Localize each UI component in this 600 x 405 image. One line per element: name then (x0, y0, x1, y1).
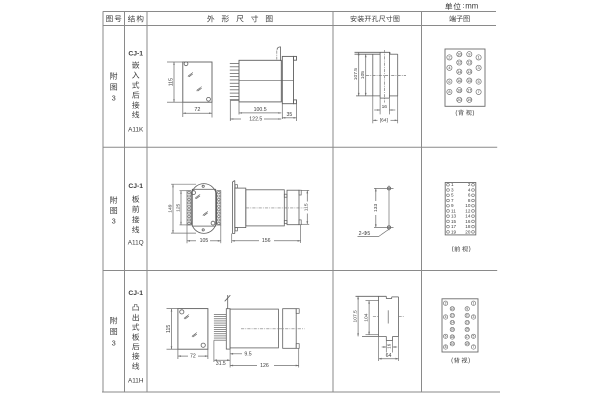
svg-text:11: 11 (467, 60, 471, 65)
svg-text:20: 20 (465, 229, 471, 234)
svg-text:6: 6 (445, 334, 447, 338)
svg-text:14: 14 (450, 321, 454, 325)
svg-text::: : (462, 1, 464, 10)
svg-text:mm: mm (465, 2, 478, 11)
svg-text:64: 64 (386, 353, 392, 359)
svg-text:15: 15 (467, 78, 471, 83)
svg-text:16: 16 (450, 328, 454, 332)
svg-text:133: 133 (373, 204, 379, 212)
svg-text:12: 12 (450, 314, 454, 318)
svg-text:7: 7 (478, 89, 480, 94)
svg-text:18: 18 (450, 335, 454, 339)
svg-text:15: 15 (465, 328, 469, 332)
svg-text:A11H: A11H (128, 378, 144, 385)
svg-text:9: 9 (466, 307, 468, 311)
svg-text:13: 13 (467, 69, 471, 74)
svg-text:7: 7 (473, 345, 475, 349)
svg-text:2-Φ5: 2-Φ5 (359, 231, 371, 237)
svg-text:13: 13 (465, 321, 469, 325)
svg-text:115: 115 (304, 203, 310, 211)
svg-text:5: 5 (478, 79, 480, 84)
svg-text:5: 5 (473, 334, 475, 338)
svg-text:105: 105 (360, 71, 366, 79)
svg-text:8: 8 (445, 345, 447, 349)
svg-text:16: 16 (387, 343, 392, 348)
svg-text:3: 3 (112, 338, 116, 347)
svg-text:72: 72 (194, 107, 200, 113)
svg-text:122.5: 122.5 (249, 116, 262, 122)
svg-text:19: 19 (451, 229, 457, 234)
svg-text:156: 156 (262, 238, 271, 244)
svg-text:3: 3 (478, 65, 480, 70)
svg-text:104: 104 (363, 313, 369, 321)
svg-text:1: 1 (478, 55, 480, 60)
svg-text:17: 17 (465, 335, 469, 339)
svg-text:18: 18 (457, 87, 461, 92)
svg-text:107.5: 107.5 (352, 310, 358, 323)
svg-text:): ) (472, 109, 474, 116)
svg-text:16: 16 (457, 78, 461, 83)
svg-text:A11K: A11K (128, 127, 144, 134)
svg-text:2: 2 (445, 301, 447, 305)
svg-text:35: 35 (287, 112, 293, 118)
svg-text:A11Q: A11Q (128, 239, 144, 246)
svg-text:12: 12 (457, 60, 461, 65)
svg-text:16: 16 (382, 104, 388, 110)
svg-text:72: 72 (190, 353, 196, 359)
svg-text:[64]: [64] (380, 118, 389, 124)
svg-text:105: 105 (200, 238, 209, 244)
svg-text:20: 20 (450, 342, 454, 346)
svg-text:4: 4 (445, 315, 447, 319)
svg-text:9: 9 (468, 51, 470, 56)
svg-text:126: 126 (260, 363, 269, 369)
svg-text:CJ-1: CJ-1 (128, 290, 143, 297)
svg-text:17: 17 (467, 87, 471, 92)
svg-text:31.5: 31.5 (216, 361, 226, 367)
svg-text:8: 8 (448, 89, 450, 94)
svg-text:11: 11 (465, 314, 469, 318)
svg-text:1: 1 (473, 301, 475, 305)
svg-text:19: 19 (467, 97, 471, 102)
svg-text:115: 115 (166, 325, 172, 333)
svg-text:6: 6 (448, 79, 450, 84)
svg-text:3: 3 (473, 315, 475, 319)
svg-text:149: 149 (167, 204, 173, 212)
svg-text:3: 3 (112, 216, 116, 225)
svg-text:2: 2 (448, 55, 450, 60)
svg-text:125: 125 (175, 203, 181, 211)
svg-text:100.5: 100.5 (254, 107, 267, 113)
svg-text:107.5: 107.5 (353, 68, 359, 81)
svg-text:19: 19 (465, 342, 469, 346)
svg-text:CJ-1: CJ-1 (128, 183, 143, 190)
svg-text:10: 10 (450, 307, 454, 311)
svg-text:9.5: 9.5 (244, 351, 251, 357)
svg-text:): ) (468, 357, 470, 364)
svg-text:CJ-1: CJ-1 (128, 51, 143, 58)
svg-text:): ) (469, 246, 471, 253)
svg-text:3: 3 (112, 93, 116, 102)
svg-text:115: 115 (168, 78, 174, 86)
